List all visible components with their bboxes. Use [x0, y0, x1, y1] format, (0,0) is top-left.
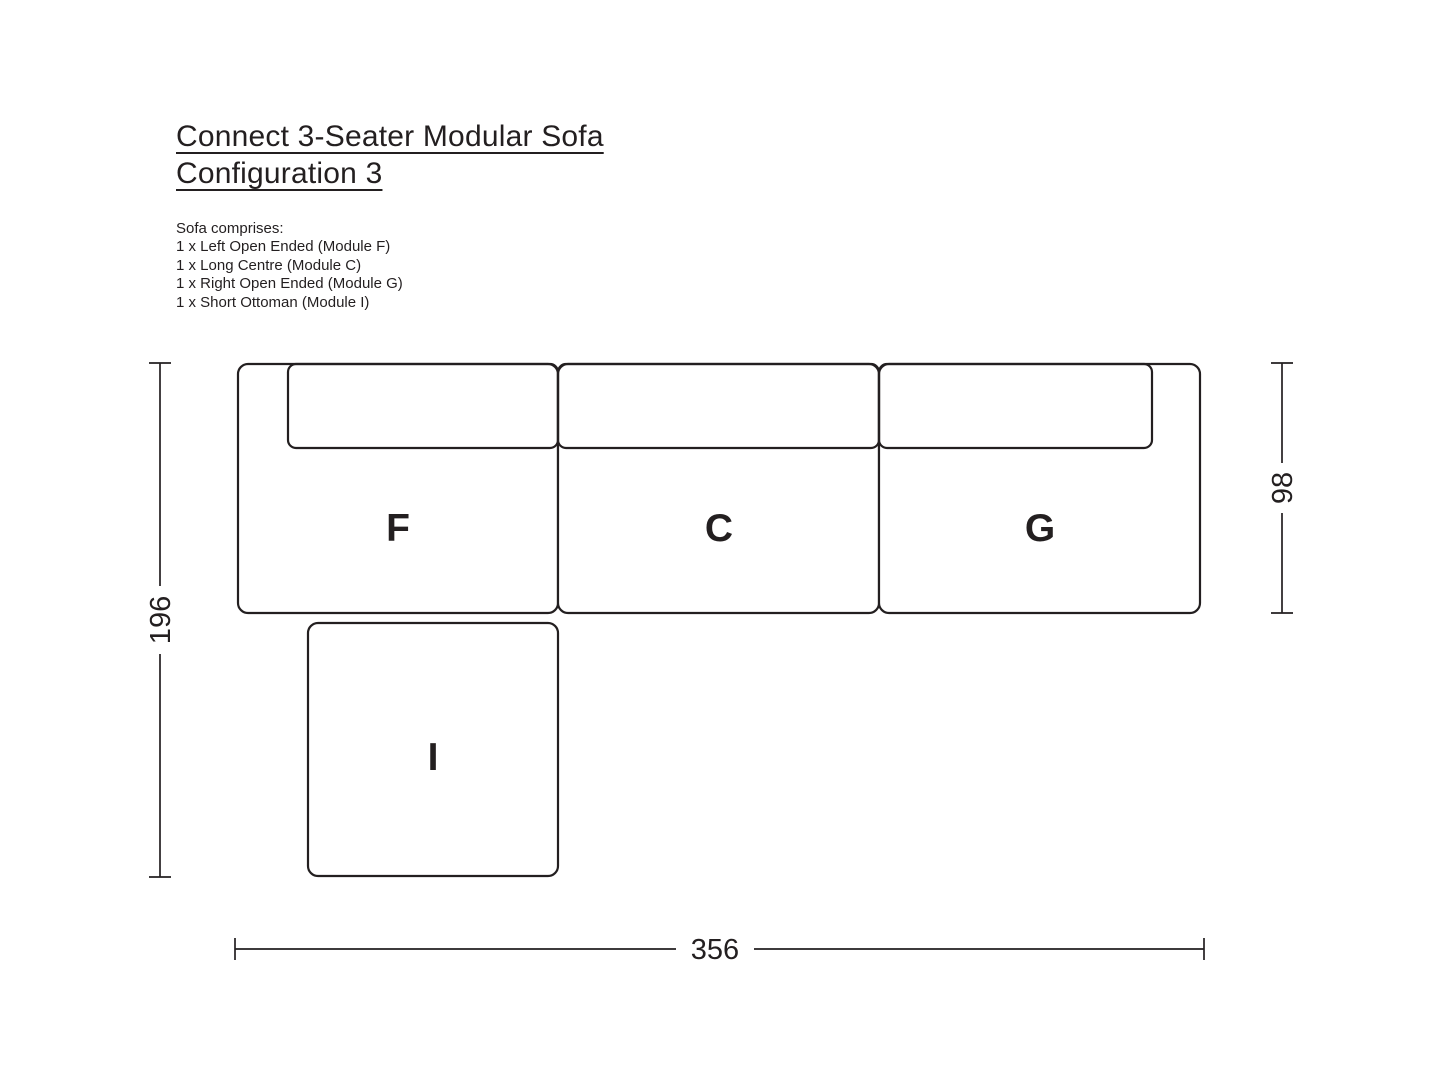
module-c-label: C: [705, 507, 733, 550]
ottoman-i-label: I: [428, 736, 439, 779]
sofa-depth-dimension-line: 98: [1267, 363, 1299, 613]
spec-sheet: Connect 3-Seater Modular Sofa Configurat…: [0, 0, 1445, 1087]
overall-depth-value: 196: [145, 596, 177, 644]
sofa-plan-diagram: F C G I 196 98 356: [0, 0, 1445, 1087]
module-c-outline: [558, 364, 879, 613]
sofa-depth-value: 98: [1267, 472, 1299, 504]
overall-depth-dimension-line: 196: [145, 363, 177, 877]
overall-width-value: 356: [691, 934, 739, 966]
module-f-outline: [238, 364, 558, 613]
module-g-label: G: [1025, 507, 1055, 550]
overall-width-dimension-line: 356: [235, 934, 1204, 966]
module-f-label: F: [386, 507, 410, 550]
